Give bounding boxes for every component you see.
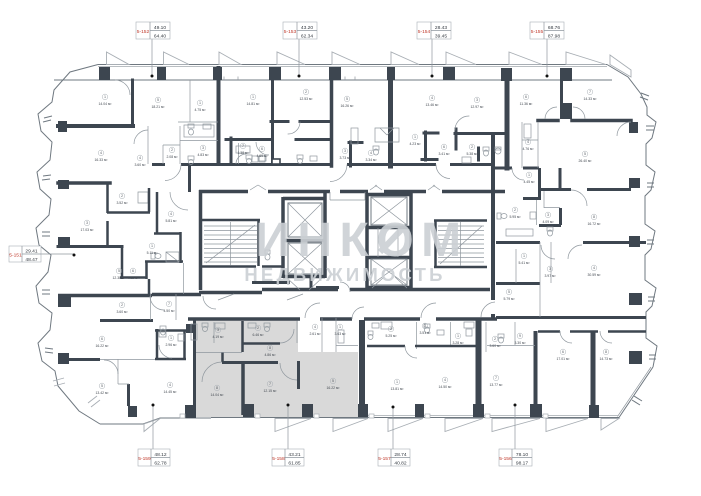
svg-text:4: 4 (100, 151, 102, 155)
svg-text:1: 1 (199, 101, 201, 105)
svg-text:43.21: 43.21 (288, 452, 301, 458)
svg-text:5-158: 5-158 (272, 456, 285, 462)
svg-text:4.76 м²: 4.76 м² (522, 147, 534, 151)
svg-text:2.61 м²: 2.61 м² (309, 332, 321, 336)
svg-text:3.73 м²: 3.73 м² (339, 156, 351, 160)
svg-text:18.21 м²: 18.21 м² (152, 105, 166, 109)
svg-text:4.45 м²: 4.45 м² (523, 180, 535, 184)
svg-text:6: 6 (443, 145, 445, 149)
svg-text:6: 6 (562, 350, 564, 354)
svg-text:5: 5 (508, 290, 510, 294)
svg-text:28.74: 28.74 (394, 452, 407, 458)
svg-text:49.10: 49.10 (154, 25, 167, 31)
svg-text:3.63 м²: 3.63 м² (334, 332, 346, 336)
svg-text:40.82: 40.82 (394, 461, 407, 467)
svg-text:2.08 м²: 2.08 м² (166, 155, 178, 159)
svg-text:1: 1 (457, 334, 459, 338)
svg-text:13.77 м²: 13.77 м² (490, 383, 504, 387)
svg-text:5.25 м²: 5.25 м² (385, 334, 397, 338)
svg-text:5-153: 5-153 (284, 29, 297, 35)
svg-text:4: 4 (169, 383, 171, 387)
svg-text:7: 7 (242, 144, 244, 148)
svg-text:78.10: 78.10 (516, 452, 529, 458)
svg-text:2: 2 (121, 303, 123, 307)
svg-text:16.33 м²: 16.33 м² (95, 158, 109, 162)
svg-text:62.34: 62.34 (301, 34, 314, 40)
svg-text:4.69 м²: 4.69 м² (256, 154, 268, 158)
svg-text:14.73 м²: 14.73 м² (600, 357, 614, 361)
svg-text:4: 4 (444, 378, 446, 382)
svg-text:3.30 м²: 3.30 м² (514, 341, 526, 345)
svg-text:1: 1 (339, 325, 341, 329)
svg-text:5.11 м²: 5.11 м² (147, 251, 159, 255)
svg-text:4.23 м²: 4.23 м² (409, 142, 421, 146)
svg-text:14.04 м²: 14.04 м² (211, 393, 225, 397)
svg-text:3.60 м²: 3.60 м² (489, 344, 501, 348)
svg-text:4.19 м²: 4.19 м² (212, 335, 224, 339)
svg-text:13.46 м²: 13.46 м² (426, 103, 440, 107)
svg-text:7: 7 (269, 382, 271, 386)
svg-text:2: 2 (257, 326, 259, 330)
svg-text:39.45: 39.45 (435, 34, 448, 40)
svg-text:4.75 м²: 4.75 м² (194, 108, 206, 112)
svg-text:17.03 м²: 17.03 м² (81, 228, 95, 232)
svg-text:5.41 м²: 5.41 м² (518, 261, 530, 265)
svg-text:13.42 м²: 13.42 м² (96, 391, 110, 395)
svg-text:4: 4 (593, 266, 595, 270)
svg-text:8: 8 (216, 386, 218, 390)
svg-text:5-156: 5-156 (499, 456, 512, 462)
svg-text:14.50 м²: 14.50 м² (439, 385, 453, 389)
svg-text:2: 2 (494, 337, 496, 341)
svg-text:2: 2 (121, 194, 123, 198)
svg-text:4.86 м²: 4.86 м² (264, 353, 276, 357)
svg-text:2.96 м²: 2.96 м² (165, 343, 177, 347)
svg-text:16.22 м²: 16.22 м² (327, 386, 341, 390)
svg-text:2: 2 (471, 145, 473, 149)
svg-text:5.79 м²: 5.79 м² (503, 297, 515, 301)
svg-text:5.95 м²: 5.95 м² (509, 215, 521, 219)
svg-text:62.78: 62.78 (154, 461, 167, 467)
svg-text:1: 1 (396, 380, 398, 384)
svg-text:2: 2 (171, 148, 173, 152)
svg-text:7: 7 (495, 376, 497, 380)
svg-text:4: 4 (370, 151, 372, 155)
svg-text:ИНКОМ: ИНКОМ (255, 214, 468, 267)
svg-text:64.40: 64.40 (154, 34, 167, 40)
svg-text:1: 1 (170, 336, 172, 340)
svg-text:9: 9 (519, 334, 521, 338)
svg-text:4: 4 (139, 156, 141, 160)
svg-text:14.81 м²: 14.81 м² (247, 102, 261, 106)
svg-text:6: 6 (101, 337, 103, 341)
svg-text:5-159: 5-159 (138, 456, 151, 462)
svg-text:5: 5 (157, 98, 159, 102)
svg-text:5-152: 5-152 (137, 29, 150, 35)
svg-text:12.38 м²: 12.38 м² (113, 276, 127, 280)
svg-text:4: 4 (527, 140, 529, 144)
svg-text:2: 2 (514, 208, 516, 212)
svg-text:3.34 м²: 3.34 м² (365, 158, 377, 162)
svg-text:4.50 м²: 4.50 м² (163, 309, 175, 313)
svg-text:5: 5 (118, 269, 120, 273)
svg-text:3: 3 (217, 328, 219, 332)
svg-text:3: 3 (549, 267, 551, 271)
svg-text:3.52 м²: 3.52 м² (116, 201, 128, 205)
svg-text:61.85: 61.85 (288, 461, 301, 467)
svg-text:14.33 м²: 14.33 м² (584, 97, 598, 101)
svg-text:4.62 м²: 4.62 м² (127, 276, 139, 280)
svg-text:4.09 м²: 4.09 м² (542, 220, 554, 224)
svg-text:3: 3 (476, 98, 478, 102)
svg-text:8: 8 (593, 215, 595, 219)
svg-text:3.28 м²: 3.28 м² (452, 341, 464, 345)
svg-text:2: 2 (305, 90, 307, 94)
svg-text:68.76: 68.76 (548, 25, 561, 31)
svg-text:4: 4 (170, 212, 172, 216)
svg-text:6: 6 (261, 147, 263, 151)
svg-text:7: 7 (589, 90, 591, 94)
svg-text:13.81 м²: 13.81 м² (391, 387, 405, 391)
svg-text:6.46 м²: 6.46 м² (252, 333, 264, 337)
svg-text:48.12: 48.12 (154, 452, 167, 458)
svg-text:29.41: 29.41 (25, 249, 38, 255)
svg-text:43.20: 43.20 (301, 25, 314, 31)
svg-text:3.60 м²: 3.60 м² (134, 163, 146, 167)
svg-text:5: 5 (346, 97, 348, 101)
svg-text:5.81 м²: 5.81 м² (165, 219, 177, 223)
svg-text:4: 4 (314, 325, 316, 329)
svg-text:4: 4 (431, 96, 433, 100)
svg-text:3.51 м²: 3.51 м² (419, 331, 431, 335)
svg-text:5: 5 (332, 379, 334, 383)
svg-text:28.43: 28.43 (435, 25, 448, 31)
svg-text:3.97 м²: 3.97 м² (544, 274, 556, 278)
svg-text:14.04 м²: 14.04 м² (99, 102, 113, 106)
svg-text:1: 1 (252, 95, 254, 99)
svg-text:8: 8 (269, 346, 271, 350)
svg-text:87.98: 87.98 (548, 34, 561, 40)
svg-text:30.59 м²: 30.59 м² (588, 273, 602, 277)
svg-text:1: 1 (528, 173, 530, 177)
svg-text:1: 1 (151, 244, 153, 248)
svg-text:3: 3 (344, 149, 346, 153)
svg-text:12.15 м²: 12.15 м² (264, 389, 278, 393)
svg-text:4.83 м²: 4.83 м² (197, 153, 209, 157)
svg-text:7: 7 (168, 302, 170, 306)
svg-text:3.41 м²: 3.41 м² (438, 152, 450, 156)
svg-text:3: 3 (547, 213, 549, 217)
svg-text:1: 1 (414, 135, 416, 139)
svg-text:5-151: 5-151 (9, 253, 22, 259)
svg-text:3: 3 (86, 221, 88, 225)
svg-text:12.53 м²: 12.53 м² (300, 97, 314, 101)
svg-text:5-157: 5-157 (378, 456, 391, 462)
svg-text:16.26 м²: 16.26 м² (341, 104, 355, 108)
svg-text:8: 8 (605, 350, 607, 354)
svg-text:5.38 м²: 5.38 м² (466, 152, 478, 156)
svg-text:5-155: 5-155 (531, 29, 544, 35)
svg-text:14.45 м²: 14.45 м² (164, 390, 178, 394)
svg-text:16.22 м²: 16.22 м² (96, 344, 110, 348)
svg-text:2: 2 (390, 327, 392, 331)
svg-text:6: 6 (132, 269, 134, 273)
svg-text:1.38 м²: 1.38 м² (237, 151, 249, 155)
svg-text:11.36 м²: 11.36 м² (520, 102, 534, 106)
svg-text:5: 5 (101, 384, 103, 388)
svg-text:5: 5 (584, 152, 586, 156)
svg-text:3.60 м²: 3.60 м² (116, 310, 128, 314)
svg-text:48.47: 48.47 (25, 257, 38, 263)
svg-text:6: 6 (525, 95, 527, 99)
svg-text:3: 3 (202, 146, 204, 150)
svg-text:12.97 м²: 12.97 м² (471, 105, 485, 109)
svg-text:1: 1 (523, 254, 525, 258)
svg-text:17.01 м²: 17.01 м² (557, 357, 571, 361)
svg-text:НЕДВИЖИМОСТЬ: НЕДВИЖИМОСТЬ (244, 264, 445, 285)
svg-text:98.17: 98.17 (516, 461, 529, 467)
svg-text:26.40 м²: 26.40 м² (579, 159, 593, 163)
svg-text:5-154: 5-154 (418, 29, 431, 35)
svg-text:3: 3 (424, 324, 426, 328)
svg-text:16.72 м²: 16.72 м² (588, 222, 602, 226)
svg-text:1: 1 (104, 95, 106, 99)
